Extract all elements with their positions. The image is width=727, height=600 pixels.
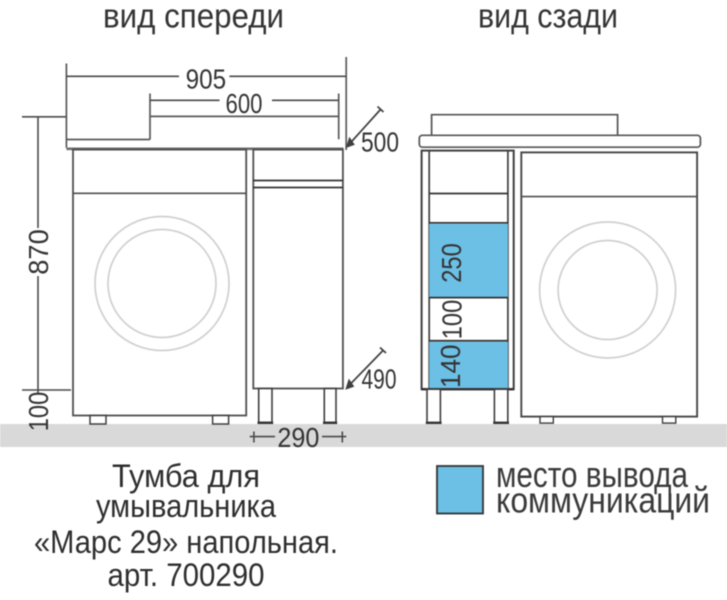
svg-text:арт. 700290: арт. 700290 xyxy=(108,557,265,593)
svg-text:500: 500 xyxy=(361,126,399,157)
svg-text:«Марс 29» напольная.: «Марс 29» напольная. xyxy=(34,524,338,560)
svg-text:вид спереди: вид спереди xyxy=(103,0,284,36)
svg-text:вид сзади: вид сзади xyxy=(478,0,618,36)
svg-text:250: 250 xyxy=(436,243,467,283)
svg-text:140: 140 xyxy=(435,345,466,389)
svg-text:умывальника: умывальника xyxy=(96,488,276,524)
svg-text:905: 905 xyxy=(186,64,227,95)
svg-text:490: 490 xyxy=(362,363,397,394)
svg-text:290: 290 xyxy=(277,422,319,453)
svg-text:870: 870 xyxy=(23,229,54,275)
svg-text:коммуникаций: коммуникаций xyxy=(496,480,710,521)
svg-text:100: 100 xyxy=(437,300,468,340)
svg-text:600: 600 xyxy=(226,88,263,119)
svg-text:100: 100 xyxy=(23,392,54,432)
